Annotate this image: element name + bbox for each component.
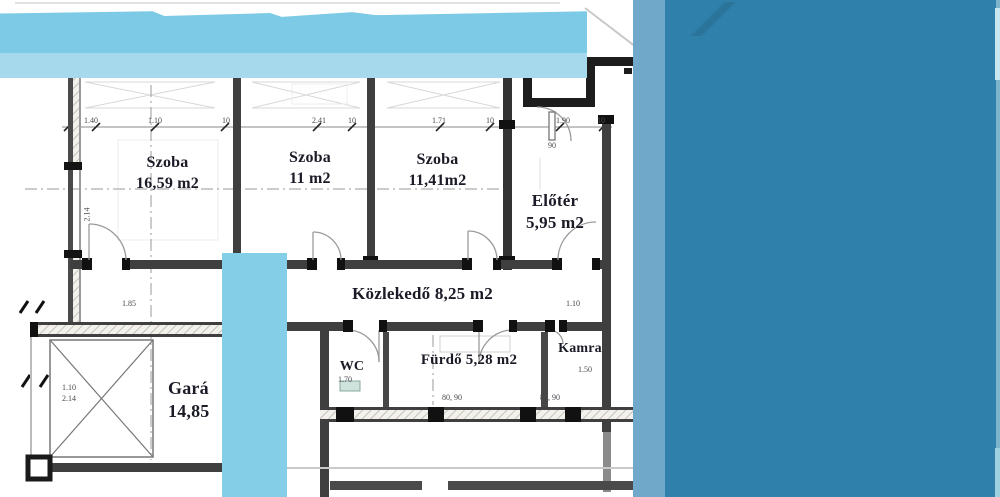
dimension-label: 10 xyxy=(486,116,494,125)
top-banner xyxy=(0,10,587,78)
top-banner-light xyxy=(0,53,587,78)
dimension-label: 1.10 xyxy=(148,116,162,125)
floorplan-page: Szoba 16,59 m2 Szoba 11 m2 Szoba 11,41m2… xyxy=(0,0,1000,497)
dimension-label: 1.90 xyxy=(556,116,570,125)
dimension-label: 2.14 xyxy=(83,208,92,222)
dimension-label: 1.10 xyxy=(62,383,76,392)
top-banner-main xyxy=(0,10,587,53)
dimension-label: 10 xyxy=(597,116,605,125)
dimension-label: 1.40 xyxy=(84,116,98,125)
panel-streak xyxy=(672,2,752,36)
right-edge-strip-bottom xyxy=(995,448,1000,497)
dimension-label: 2.41 xyxy=(312,116,326,125)
dimension-label: 90 xyxy=(548,141,556,150)
dimension-label: 1.70 xyxy=(338,375,352,384)
vertical-stripe-overlay xyxy=(222,253,287,497)
dimension-label: 80, 90 xyxy=(540,393,560,402)
right-dark-panel xyxy=(665,0,1000,497)
dimension-label: 80, 90 xyxy=(442,393,462,402)
right-light-column xyxy=(633,0,665,497)
dimension-label: 10 xyxy=(348,116,356,125)
dimension-label: 1.85 xyxy=(122,299,136,308)
dimension-label: 1.71 xyxy=(432,116,446,125)
right-edge-strip-top xyxy=(995,8,1000,80)
dimension-label: 1.10 xyxy=(566,299,580,308)
dimension-label: 2.14 xyxy=(62,394,76,403)
dimension-label: 10 xyxy=(222,116,230,125)
dimension-label: 1.50 xyxy=(578,365,592,374)
